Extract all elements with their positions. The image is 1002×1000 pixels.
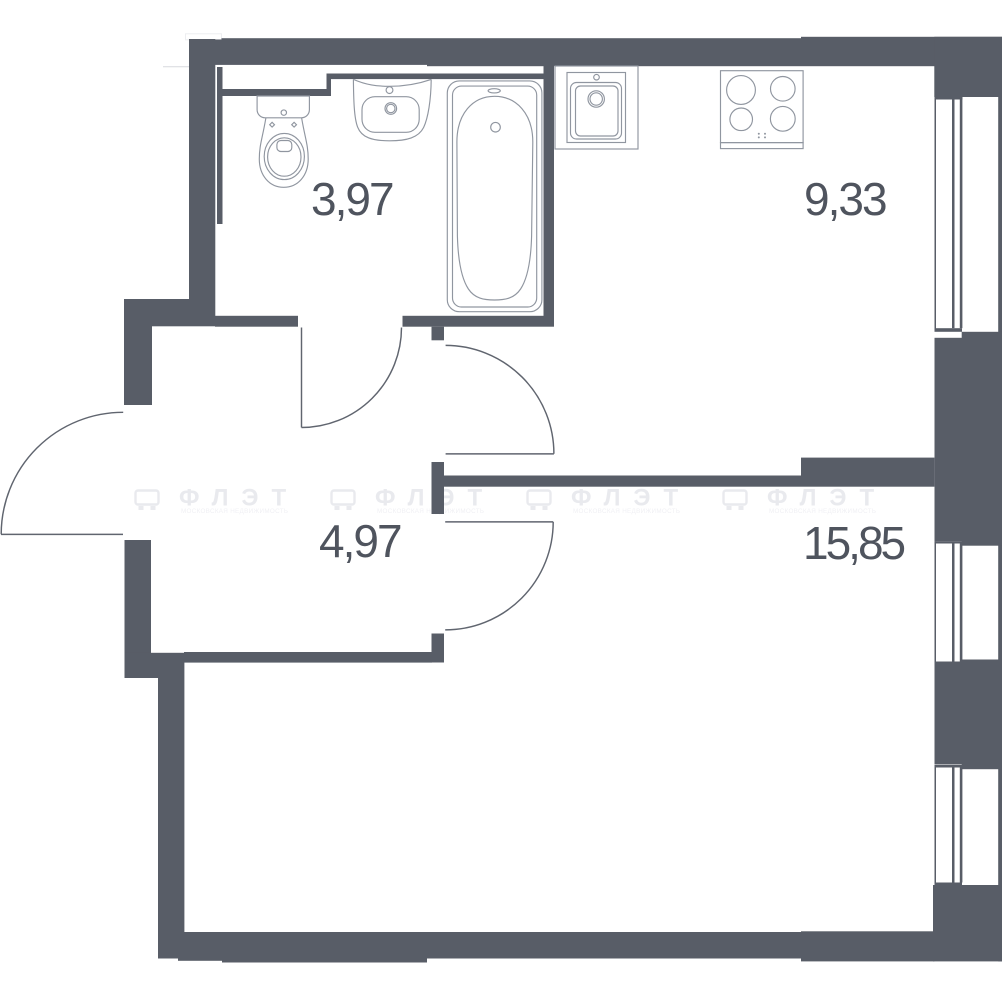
svg-text:МОСКОВСКАЯ НЕДВИЖИМОСТЬ: МОСКОВСКАЯ НЕДВИЖИМОСТЬ [181, 508, 288, 515]
svg-text:МОСКОВСКАЯ НЕДВИЖИМОСТЬ: МОСКОВСКАЯ НЕДВИЖИМОСТЬ [769, 508, 876, 515]
svg-text:9,33: 9,33 [804, 173, 886, 225]
svg-text:МОСКОВСКАЯ НЕДВИЖИМОСТЬ: МОСКОВСКАЯ НЕДВИЖИМОСТЬ [377, 508, 484, 515]
svg-text:3,97: 3,97 [311, 173, 393, 225]
svg-text:4,97: 4,97 [319, 515, 401, 567]
svg-text:15,85: 15,85 [803, 517, 905, 569]
svg-text:МОСКОВСКАЯ НЕДВИЖИМОСТЬ: МОСКОВСКАЯ НЕДВИЖИМОСТЬ [573, 508, 680, 515]
